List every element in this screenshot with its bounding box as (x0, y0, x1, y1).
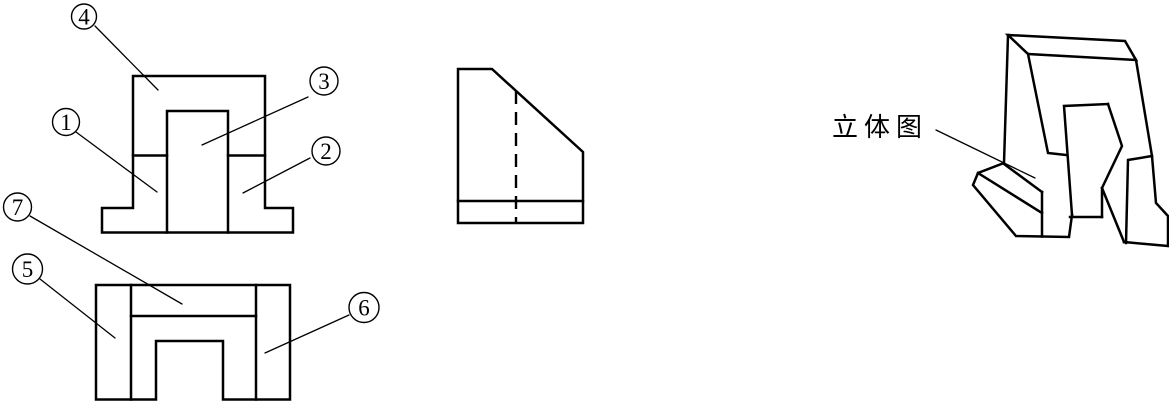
top-view-outline (96, 285, 290, 400)
pictorial-left-silhouette (1004, 35, 1008, 163)
top-view (96, 285, 290, 400)
callout-4: 4 (72, 4, 159, 90)
pictorial-caption: 立体图 (832, 113, 928, 142)
callout-7-leader-line (30, 216, 182, 304)
callout-2: 2 (243, 137, 340, 193)
pictorial-view (973, 35, 1168, 246)
front-view-center-column (167, 111, 228, 233)
pictorial-right-foot-front-edge (1102, 188, 1124, 242)
callout-1: 1 (53, 109, 158, 193)
pictorial-cutout-right-edge (1102, 104, 1122, 217)
technical-drawing: 1 2 3 4 5 6 7 (0, 0, 1169, 403)
callout-6-leader-line (265, 315, 349, 353)
callout-3-leader-line (202, 97, 308, 145)
pictorial-front-face-left-edge (1028, 54, 1066, 155)
pictorial-base-flange-top-back-edge (1004, 164, 1042, 192)
callout-2-leader-line (243, 158, 310, 193)
callout-1-leader-line (76, 132, 157, 192)
pictorial-base-flange-top-front-edge (978, 173, 1042, 213)
callout-3-number: 3 (318, 69, 330, 94)
front-view (102, 76, 293, 233)
callout-1-number: 1 (60, 110, 72, 135)
drawing-canvas: 1 2 3 4 5 6 7 (0, 0, 1169, 403)
callout-7-number: 7 (12, 195, 24, 220)
callout-5: 5 (13, 254, 116, 338)
callout-5-number: 5 (22, 257, 34, 282)
callout-2-number: 2 (320, 139, 332, 164)
callout-7: 7 (4, 193, 183, 304)
pictorial-right-leg-front-face (1126, 156, 1152, 243)
callout-5-leader-line (40, 279, 115, 338)
callout-3: 3 (202, 67, 338, 145)
pictorial-right-silhouette (1124, 60, 1168, 246)
callout-4-number: 4 (78, 5, 90, 30)
callout-6-number: 6 (358, 296, 370, 321)
side-view (458, 69, 583, 223)
callout-4-leader-line (95, 26, 158, 90)
callout-6: 6 (265, 293, 379, 354)
